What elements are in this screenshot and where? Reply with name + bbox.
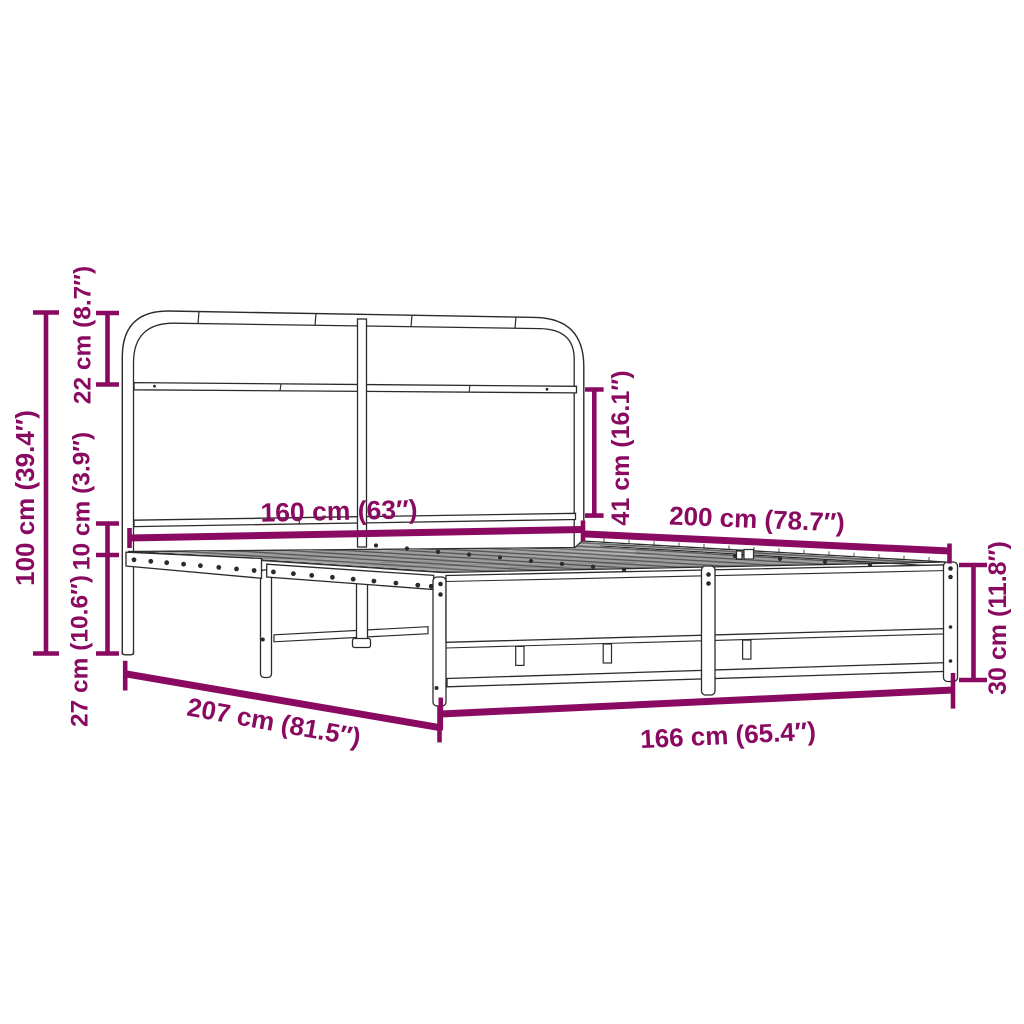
svg-text:100 cm (39.4″): 100 cm (39.4″) (10, 410, 40, 586)
svg-text:30 cm (11.8″): 30 cm (11.8″) (984, 541, 1012, 695)
svg-text:27 cm (10.6″): 27 cm (10.6″) (67, 575, 94, 727)
svg-text:160 cm (63″): 160 cm (63″) (260, 494, 418, 528)
svg-text:10 cm (3.9″): 10 cm (3.9″) (69, 432, 96, 570)
svg-text:41 cm (16.1″): 41 cm (16.1″) (607, 370, 635, 525)
svg-text:166 cm (65.4″): 166 cm (65.4″) (640, 716, 817, 754)
svg-text:22 cm (8.7″): 22 cm (8.7″) (70, 266, 97, 404)
svg-text:200 cm (78.7″): 200 cm (78.7″) (669, 500, 846, 537)
